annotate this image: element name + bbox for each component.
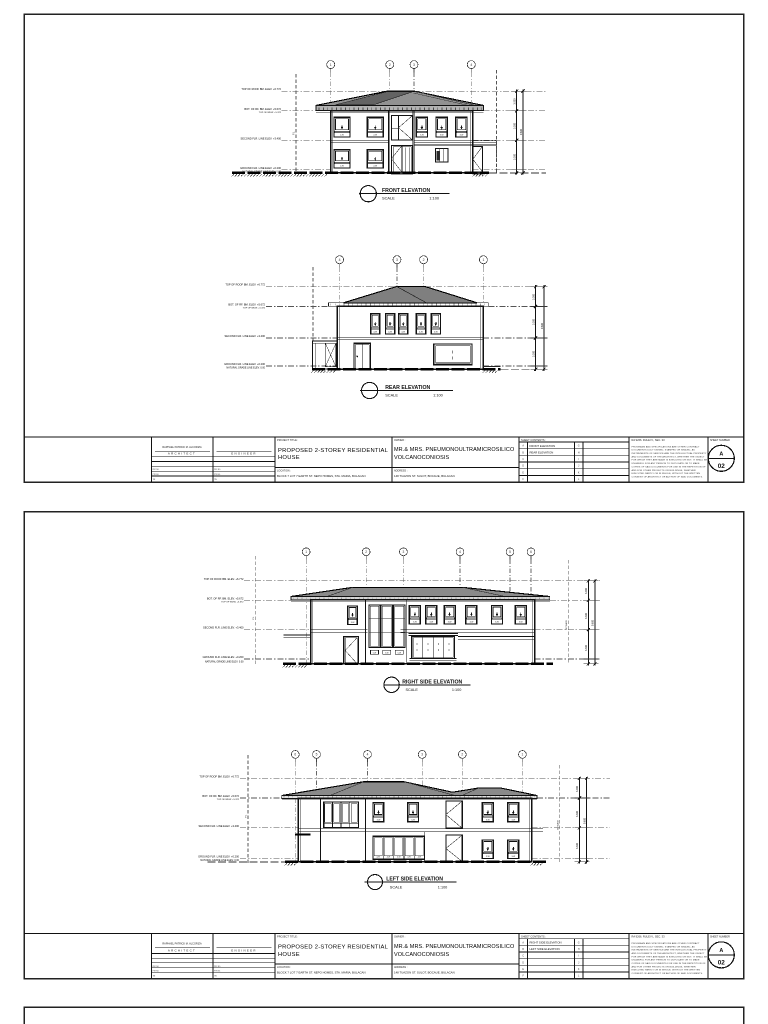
svg-text:DOCUMENTS DULY SIGNED, STAMPED: DOCUMENTS DULY SIGNED, STAMPED OR SEALED…: [632, 945, 696, 948]
svg-text:SCALE: SCALE: [390, 885, 403, 889]
svg-text:NATURAL GRADE LINE ELEV. 0.00: NATURAL GRADE LINE ELEV. 0.00: [205, 661, 244, 664]
svg-text:SETBACK: SETBACK: [557, 819, 560, 830]
svg-text:L: L: [578, 479, 580, 481]
svg-text:4-W: 4-W: [407, 857, 411, 859]
svg-text:COPIES OF SAID DOCUMENTS FOR U: COPIES OF SAID DOCUMENTS FOR USE IN THE …: [632, 465, 707, 468]
svg-text:TIN: TIN: [214, 975, 217, 977]
svg-text:TIN: TIN: [153, 975, 156, 977]
svg-text:3-W: 3-W: [486, 820, 490, 822]
svg-text:MR.& MRS. PNEUMONOULTRAMICROSI: MR.& MRS. PNEUMONOULTRAMICROSILICO: [394, 944, 515, 950]
svg-text:H: H: [578, 452, 580, 454]
svg-text:P.L.: P.L.: [294, 131, 296, 135]
svg-text:BOT. OF RF. BM. ELEV. +5.672: BOT. OF RF. BM. ELEV. +5.672: [207, 596, 244, 600]
svg-text:D: D: [522, 962, 524, 964]
svg-text:LOCATION :: LOCATION :: [277, 966, 291, 969]
svg-text:AND DOCUMENTS OF THE ARCHITECT: AND DOCUMENTS OF THE ARCHITECT, WHETHER …: [632, 952, 706, 955]
svg-text:3-W: 3-W: [448, 622, 452, 624]
svg-text:SHEET NUMBER: SHEET NUMBER: [710, 935, 730, 938]
svg-text:3: 3: [413, 63, 415, 67]
svg-text:PROGRAMS AND SPECIFICATIONS AR: PROGRAMS AND SPECIFICATIONS ARE OTHER CO…: [632, 942, 701, 945]
svg-text:FRONT ELEVATION: FRONT ELEVATION: [530, 444, 556, 448]
svg-text:3-W: 3-W: [377, 820, 381, 822]
svg-text:TOP OF ROOF BM. ELEV. +6.772: TOP OF ROOF BM. ELEV. +6.772: [204, 577, 244, 581]
svg-text:TOP OF WDW. +5.372: TOP OF WDW. +5.372: [243, 308, 266, 310]
svg-text:K: K: [578, 969, 580, 971]
svg-text:ARCHITECT: ARCHITECT: [168, 948, 196, 952]
svg-text:3-W: 3-W: [519, 622, 523, 624]
svg-text:ENGINEER: ENGINEER: [231, 452, 257, 456]
svg-text:CONSENT OF ARCHITECT OR AUTHOR: CONSENT OF ARCHITECT OR AUTHOR OF SAID D…: [632, 972, 704, 975]
svg-text:D: D: [522, 466, 524, 468]
svg-text:PROPOSED 2-STOREY RESIDENTIAL: PROPOSED 2-STOREY RESIDENTIAL: [278, 945, 389, 951]
svg-text:B: B: [522, 949, 524, 951]
svg-text:2-W: 2-W: [373, 135, 377, 137]
svg-text:PRC NO.: PRC NO.: [153, 469, 160, 471]
svg-text:PROJECT TITLE :: PROJECT TITLE :: [277, 438, 299, 442]
svg-text:H: H: [578, 949, 580, 951]
svg-text:2: 2: [365, 550, 367, 554]
svg-text:F: F: [522, 479, 524, 481]
svg-text:PTR NO.: PTR NO.: [214, 474, 221, 476]
svg-text:5-W: 5-W: [385, 652, 389, 654]
svg-text:3.300: 3.300: [532, 318, 535, 325]
svg-text:RAPHAEL PATRICK M. ALCORIZA: RAPHAEL PATRICK M. ALCORIZA: [162, 446, 202, 449]
svg-text:3: 3: [396, 258, 398, 262]
svg-text:3.000: 3.000: [513, 98, 516, 105]
svg-text:3.300: 3.300: [585, 644, 588, 651]
svg-text:PROGRAMS AND SPECIFICATIONS AR: PROGRAMS AND SPECIFICATIONS ARE OTHER CO…: [632, 445, 701, 448]
svg-text:TOP OF ROOF BM. ELEV. +6.772: TOP OF ROOF BM. ELEV. +6.772: [225, 283, 265, 287]
svg-text:3.300: 3.300: [532, 350, 535, 357]
svg-text:4-W: 4-W: [401, 332, 405, 334]
svg-text:3: 3: [403, 550, 405, 554]
svg-text:3.300: 3.300: [576, 842, 579, 849]
svg-text:SETBACK: SETBACK: [565, 619, 568, 630]
svg-text:148 TUAZON ST. SULOT, BOCAUE,: 148 TUAZON ST. SULOT, BOCAUE, BULACAN: [394, 474, 455, 478]
svg-text:02: 02: [718, 463, 726, 470]
svg-text:4-W: 4-W: [419, 332, 423, 334]
svg-text:ARCHITECT: ARCHITECT: [168, 452, 196, 456]
svg-text:SECOND FLR. LINE ELEV. +3.400: SECOND FLR. LINE ELEV. +3.400: [199, 824, 240, 828]
svg-text:4-W: 4-W: [387, 857, 391, 859]
svg-text:TIN: TIN: [214, 479, 217, 481]
svg-text:PROJECT TITLE :: PROJECT TITLE :: [277, 934, 299, 938]
svg-text:PRC NO.: PRC NO.: [214, 966, 221, 968]
svg-text:3-W: 3-W: [486, 856, 490, 858]
svg-text:9.600: 9.600: [583, 817, 586, 824]
svg-text:3.300: 3.300: [576, 810, 579, 817]
svg-text:3.000: 3.000: [532, 293, 535, 300]
svg-text:3-W: 3-W: [413, 622, 417, 624]
svg-text:2-W: 2-W: [373, 166, 377, 168]
svg-text:BLOCK 7 LOT 7 EARTH ST. NEPO H: BLOCK 7 LOT 7 EARTH ST. NEPO HOMES, STA.…: [277, 971, 366, 975]
svg-text:SCALE: SCALE: [382, 196, 395, 201]
svg-text:6: 6: [530, 550, 532, 554]
svg-text:F: F: [522, 976, 524, 978]
svg-text:OWNER :: OWNER :: [394, 934, 406, 938]
svg-text:ADDRESS :: ADDRESS :: [394, 469, 408, 472]
svg-text:SECOND FLR. LINE ELEV. +3.400: SECOND FLR. LINE ELEV. +3.400: [203, 626, 244, 630]
svg-text:RA 9266. RULE IV., SEC. 33: RA 9266. RULE IV., SEC. 33: [632, 438, 666, 442]
svg-text:EXECUTED PARTLY OR IN WHOLE, W: EXECUTED PARTLY OR IN WHOLE, WITHOUT THE…: [632, 969, 701, 972]
svg-text:UNLAWFUL FOR ANY PERSON TO DUP: UNLAWFUL FOR ANY PERSON TO DUPLICATE OR …: [632, 462, 700, 465]
svg-text:9.600: 9.600: [541, 322, 544, 329]
svg-text:4-W: 4-W: [373, 332, 377, 334]
svg-text:3-W: 3-W: [511, 856, 515, 858]
svg-text:FOR WHICH THEY ARE MADE IS EXE: FOR WHICH THEY ARE MADE IS EXECUTED OR N…: [632, 459, 708, 462]
svg-text:LEFT SIDE ELEVATION: LEFT SIDE ELEVATION: [386, 877, 443, 883]
svg-text:1: 1: [305, 550, 307, 554]
svg-text:SECOND FLR. LINE ELEV. +3.400: SECOND FLR. LINE ELEV. +3.400: [225, 334, 266, 338]
svg-text:SHEET NUMBER: SHEET NUMBER: [710, 439, 730, 442]
svg-text:RA 9266. RULE IV., SEC. 33: RA 9266. RULE IV., SEC. 33: [632, 934, 666, 938]
svg-text:PRC NO.: PRC NO.: [214, 469, 221, 471]
svg-text:4-W: 4-W: [418, 857, 422, 859]
svg-text:INSTRUMENTS OF SERVICE ARE THE: INSTRUMENTS OF SERVICE ARE THE INTELLECT…: [632, 949, 707, 952]
svg-text:I: I: [578, 459, 579, 461]
svg-text:SHEET CONTENTS :: SHEET CONTENTS :: [521, 934, 546, 938]
svg-text:1:100: 1:100: [433, 392, 444, 397]
svg-text:3-W: 3-W: [470, 622, 474, 624]
svg-text:TOP OF WDW. +5.372: TOP OF WDW. +5.372: [217, 799, 240, 801]
svg-text:4: 4: [339, 258, 341, 262]
svg-text:EXECUTED PARTLY OR IN WHOLE, W: EXECUTED PARTLY OR IN WHOLE, WITHOUT THE…: [632, 472, 701, 475]
svg-text:1: 1: [522, 753, 524, 757]
svg-text:AND FOR OTHER PROJECTS OR BUIL: AND FOR OTHER PROJECTS OR BUILDINGS, WHE…: [632, 469, 697, 472]
svg-text:LEFT SIDE ELEVATION: LEFT SIDE ELEVATION: [530, 947, 560, 951]
svg-text:E: E: [522, 472, 524, 474]
svg-text:INSTRUMENTS OF SERVICE ARE THE: INSTRUMENTS OF SERVICE ARE THE INTELLECT…: [632, 452, 707, 455]
svg-text:VOLCANOCONIOSIS: VOLCANOCONIOSIS: [394, 952, 450, 958]
svg-text:A: A: [719, 452, 723, 458]
svg-text:FRONT ELEVATION: FRONT ELEVATION: [382, 188, 430, 194]
svg-text:REAR ELEVATION: REAR ELEVATION: [530, 450, 554, 454]
svg-text:OWNER :: OWNER :: [394, 438, 406, 442]
svg-text:G: G: [578, 942, 580, 944]
svg-text:SCALE: SCALE: [406, 688, 419, 692]
svg-text:SECOND FLR. LINE ELEV. +3.400: SECOND FLR. LINE ELEV. +3.400: [241, 136, 282, 140]
svg-text:RIGHT SIDE ELEVATION: RIGHT SIDE ELEVATION: [402, 679, 462, 685]
svg-text:BOT. OF RF. BM. ELEV. +5.672: BOT. OF RF. BM. ELEV. +5.672: [244, 107, 281, 111]
svg-text:1: 1: [330, 63, 332, 67]
svg-text:DOCUMENTS DULY SIGNED, STAMPED: DOCUMENTS DULY SIGNED, STAMPED OR SEALED…: [632, 449, 696, 452]
svg-text:A: A: [522, 941, 524, 944]
svg-text:3.000: 3.000: [576, 785, 579, 792]
svg-text:1:100: 1:100: [452, 688, 462, 692]
svg-text:RIGHT SIDE ELEVATION: RIGHT SIDE ELEVATION: [530, 940, 562, 944]
svg-text:CONSENT OF ARCHITECT OR AUTHOR: CONSENT OF ARCHITECT OR AUTHOR OF SAID D…: [632, 475, 704, 478]
svg-text:4-W: 4-W: [377, 857, 381, 859]
svg-text:3-W: 3-W: [511, 820, 515, 822]
svg-text:3-W: 3-W: [460, 135, 464, 137]
svg-text:SCALE: SCALE: [385, 392, 398, 397]
svg-text:TOP OF ROOF BM. ELEV. +6.772: TOP OF ROOF BM. ELEV. +6.772: [241, 87, 281, 91]
svg-text:A: A: [719, 948, 723, 954]
svg-text:B: B: [522, 452, 524, 454]
svg-text:NATURAL GRADE LINE ELEV. 0.00: NATURAL GRADE LINE ELEV. 0.00: [226, 367, 265, 370]
svg-text:GROUND FLR. LINE ELEV. +0.200: GROUND FLR. LINE ELEV. +0.200: [198, 855, 239, 859]
svg-text:3-W: 3-W: [495, 622, 499, 624]
svg-text:TOP OF ROOF BM. ELEV. +6.772: TOP OF ROOF BM. ELEV. +6.772: [199, 774, 239, 778]
svg-text:5: 5: [509, 550, 511, 554]
svg-text:2-W: 2-W: [340, 166, 344, 168]
svg-text:4: 4: [470, 63, 472, 67]
svg-text:4: 4: [367, 753, 369, 757]
svg-text:C: C: [522, 956, 524, 958]
svg-text:1: 1: [482, 258, 484, 262]
svg-text:A: A: [522, 445, 524, 448]
svg-text:2: 2: [423, 258, 425, 262]
svg-text:3-W: 3-W: [440, 135, 444, 137]
svg-text:9.600: 9.600: [592, 619, 595, 626]
svg-text:9.600: 9.600: [520, 128, 523, 135]
svg-text:G: G: [578, 446, 580, 448]
svg-text:SHEET CONTENTS :: SHEET CONTENTS :: [521, 438, 546, 442]
svg-text:GROUND FLR. LINE ELEV. +0.200: GROUND FLR. LINE ELEV. +0.200: [203, 655, 244, 659]
svg-text:5: 5: [316, 753, 318, 757]
svg-text:GROUND FLR. LINE ELEV. +0.200: GROUND FLR. LINE ELEV. +0.200: [240, 166, 281, 170]
svg-text:P.L.: P.L.: [253, 616, 255, 620]
svg-text:I: I: [578, 956, 579, 958]
svg-text:UNLAWFUL FOR ANY PERSON TO DUP: UNLAWFUL FOR ANY PERSON TO DUPLICATE OR …: [632, 959, 700, 962]
svg-text:3.300: 3.300: [513, 153, 516, 160]
svg-text:PTR NO.: PTR NO.: [153, 474, 160, 476]
svg-text:BOT. OF RF. BM. ELEV. +5.672: BOT. OF RF. BM. ELEV. +5.672: [202, 794, 239, 798]
svg-text:3.000: 3.000: [585, 587, 588, 594]
svg-text:HOUSE: HOUSE: [278, 952, 300, 958]
svg-text:1:100: 1:100: [429, 196, 440, 201]
svg-text:02: 02: [718, 960, 726, 967]
svg-text:3.300: 3.300: [585, 612, 588, 619]
svg-text:2: 2: [389, 63, 391, 67]
svg-text:J: J: [578, 962, 579, 964]
svg-text:TOP OF WDW. +5.372: TOP OF WDW. +5.372: [221, 601, 244, 603]
svg-text:HOUSE: HOUSE: [278, 455, 300, 461]
svg-text:REAR ELEVATION: REAR ELEVATION: [385, 385, 430, 391]
svg-text:K: K: [578, 472, 580, 474]
svg-text:1:100: 1:100: [438, 885, 448, 889]
svg-text:BLOCK 7 LOT 7 EARTH ST. NEPO H: BLOCK 7 LOT 7 EARTH ST. NEPO HOMES, STA.…: [277, 474, 366, 478]
svg-text:VOLCANOCONIOSIS: VOLCANOCONIOSIS: [394, 455, 450, 461]
svg-text:AND DOCUMENTS OF THE ARCHITECT: AND DOCUMENTS OF THE ARCHITECT, WHETHER …: [632, 455, 706, 458]
svg-text:J: J: [578, 466, 579, 468]
svg-text:6: 6: [294, 753, 296, 757]
svg-text:PROPOSED 2-STOREY RESIDENTIAL: PROPOSED 2-STOREY RESIDENTIAL: [278, 448, 389, 454]
svg-text:4-W: 4-W: [388, 332, 392, 334]
svg-text:PTR NO.: PTR NO.: [153, 971, 160, 973]
svg-text:5-W: 5-W: [373, 652, 377, 654]
svg-text:FOR WHICH THEY ARE MADE IS EXE: FOR WHICH THEY ARE MADE IS EXECUTED OR N…: [632, 955, 708, 958]
svg-text:E: E: [522, 969, 524, 971]
svg-text:5-W: 5-W: [398, 652, 402, 654]
svg-text:3-W: 3-W: [411, 820, 415, 822]
svg-text:3-W: 3-W: [429, 622, 433, 624]
svg-text:TOP OF WDW. +5.372: TOP OF WDW. +5.372: [259, 112, 282, 114]
svg-text:2: 2: [461, 753, 463, 757]
svg-text:COPIES OF SAID DOCUMENTS FOR U: COPIES OF SAID DOCUMENTS FOR USE IN THE …: [632, 962, 707, 965]
svg-text:AND FOR OTHER PROJECTS OR BUIL: AND FOR OTHER PROJECTS OR BUILDINGS, WHE…: [632, 965, 697, 968]
svg-text:RAPHAEL PATRICK M. ALCORIZA: RAPHAEL PATRICK M. ALCORIZA: [162, 943, 202, 946]
svg-text:4-W: 4-W: [434, 332, 438, 334]
svg-text:3-W: 3-W: [351, 622, 355, 624]
svg-text:P.L.: P.L.: [246, 814, 248, 818]
svg-text:PRC NO.: PRC NO.: [153, 966, 160, 968]
svg-text:148 TUAZON ST. SULOT, BOCAUE,: 148 TUAZON ST. SULOT, BOCAUE, BULACAN: [394, 971, 455, 975]
svg-text:PTR NO.: PTR NO.: [214, 971, 221, 973]
svg-text:LOCATION :: LOCATION :: [277, 469, 291, 472]
svg-text:C: C: [522, 459, 524, 461]
svg-text:ADDRESS :: ADDRESS :: [394, 966, 408, 969]
svg-text:L: L: [578, 976, 580, 978]
svg-text:MR.& MRS. PNEUMONOULTRAMICROSI: MR.& MRS. PNEUMONOULTRAMICROSILICO: [394, 447, 515, 453]
svg-text:4-W: 4-W: [397, 857, 401, 859]
svg-text:TIN: TIN: [153, 479, 156, 481]
svg-text:4: 4: [459, 550, 461, 554]
svg-text:3.300: 3.300: [513, 122, 516, 129]
svg-text:3-W: 3-W: [420, 135, 424, 137]
svg-text:ENGINEER: ENGINEER: [231, 948, 257, 952]
svg-text:GROUND FLR. LINE ELEV. +0.200: GROUND FLR. LINE ELEV. +0.200: [224, 362, 265, 366]
svg-text:BOT. OF RF. BM. ELEV. +5.672: BOT. OF RF. BM. ELEV. +5.672: [228, 303, 265, 307]
svg-text:3: 3: [421, 753, 423, 757]
svg-text:2-W: 2-W: [340, 135, 344, 137]
